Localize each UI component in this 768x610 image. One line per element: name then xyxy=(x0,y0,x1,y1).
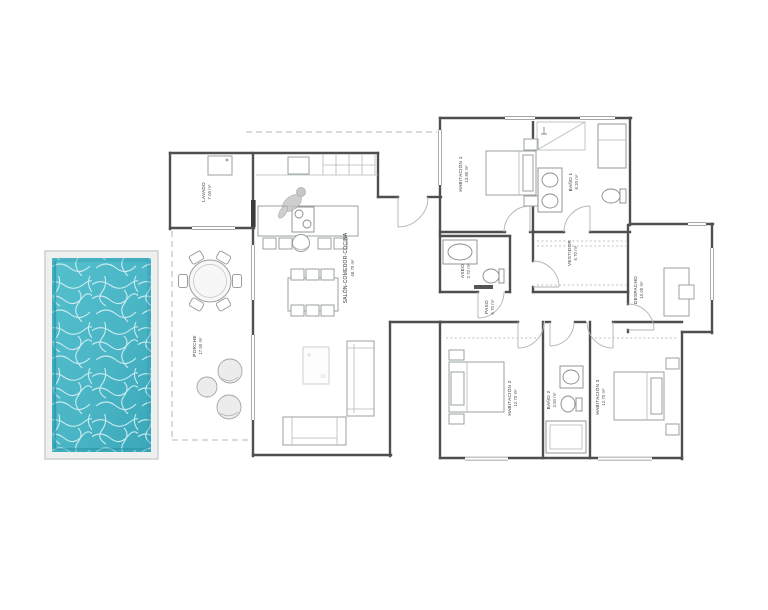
room-label-bano2: BAÑO 2 3.50 m² xyxy=(545,391,557,410)
bed-hab1 xyxy=(486,139,538,206)
room-label-paso: PASO 6.70 m² xyxy=(484,299,495,314)
sliding-door xyxy=(251,200,256,227)
kitchen-island xyxy=(258,206,358,236)
svg-text:SALÓN-COMEDOR-COCINA: SALÓN-COMEDOR-COCINA xyxy=(342,232,349,303)
swimming-pool xyxy=(45,251,158,459)
dining-table xyxy=(288,269,338,316)
bathroom2-fixtures xyxy=(546,366,586,453)
bed-hab2 xyxy=(446,338,538,424)
svg-text:12.70 m²: 12.70 m² xyxy=(513,389,518,407)
island-stools xyxy=(263,235,347,252)
room-label-bano1: BAÑO 1 8.20 m² xyxy=(567,173,579,192)
sofa-vertical xyxy=(347,341,374,416)
svg-text:17.50 m²: 17.50 m² xyxy=(198,337,203,355)
svg-text:BAÑO 1: BAÑO 1 xyxy=(567,173,573,192)
svg-text:ASEO: ASEO xyxy=(460,264,465,278)
svg-text:HABITACIÓN 3: HABITACIÓN 3 xyxy=(594,379,600,414)
room-label-habitacion1: HABITACIÓN 1 13.80 m² xyxy=(457,156,469,191)
room-label-vestidor: VESTIDOR 6.70 m² xyxy=(567,240,578,266)
despacho-desk xyxy=(664,268,694,316)
porch-poufs xyxy=(197,359,242,419)
svg-text:6.70 m²: 6.70 m² xyxy=(573,245,578,260)
svg-text:13.80 m²: 13.80 m² xyxy=(464,165,469,183)
floor-plan-page: LAVADO 7.00 m² SALÓN-COMEDOR-COCINA 48.7… xyxy=(0,0,768,610)
room-label-aseo: ASEO 2.70 m² xyxy=(460,263,471,278)
svg-text:12.70 m²: 12.70 m² xyxy=(601,388,606,406)
floor-plan-svg: LAVADO 7.00 m² SALÓN-COMEDOR-COCINA 48.7… xyxy=(0,0,768,610)
washing-machine xyxy=(208,156,232,175)
vestidor-shelves xyxy=(537,241,626,285)
svg-text:7.00 m²: 7.00 m² xyxy=(207,184,212,199)
sofa-horizontal xyxy=(283,417,346,445)
svg-text:6.70 m²: 6.70 m² xyxy=(490,299,495,314)
svg-text:LAVADO: LAVADO xyxy=(201,182,206,202)
room-label-salon: SALÓN-COMEDOR-COCINA 48.70 m² xyxy=(342,232,355,303)
svg-text:48.70 m²: 48.70 m² xyxy=(350,259,355,277)
svg-text:8.20 m²: 8.20 m² xyxy=(574,174,579,189)
svg-text:10.00 m²: 10.00 m² xyxy=(639,281,644,299)
room-label-lavado: LAVADO 7.00 m² xyxy=(201,182,212,202)
svg-text:VESTIDOR: VESTIDOR xyxy=(567,240,572,266)
svg-text:BAÑO 2: BAÑO 2 xyxy=(545,391,551,410)
aseo-fixtures xyxy=(443,240,504,289)
room-label-porche: PORCHE 17.50 m² xyxy=(192,335,203,357)
threshold xyxy=(474,285,493,289)
svg-text:3.50 m²: 3.50 m² xyxy=(552,392,557,407)
svg-text:PASO: PASO xyxy=(484,300,489,314)
svg-text:HABITACIÓN 2: HABITACIÓN 2 xyxy=(506,380,512,415)
svg-text:DESPACHO: DESPACHO xyxy=(633,276,638,304)
kitchen-counter xyxy=(256,155,378,175)
svg-text:2.70 m²: 2.70 m² xyxy=(466,263,471,278)
room-label-habitacion3: HABITACIÓN 3 12.70 m² xyxy=(594,379,606,414)
bed-hab3 xyxy=(595,338,679,435)
porch-table xyxy=(179,250,242,311)
svg-text:HABITACIÓN 1: HABITACIÓN 1 xyxy=(457,156,463,191)
bathroom1-fixtures xyxy=(537,122,626,212)
room-label-habitacion2: HABITACIÓN 2 12.70 m² xyxy=(506,380,518,415)
svg-text:PORCHE: PORCHE xyxy=(192,335,197,357)
rug xyxy=(303,347,329,384)
room-label-despacho: DESPACHO 10.00 m² xyxy=(633,276,644,304)
